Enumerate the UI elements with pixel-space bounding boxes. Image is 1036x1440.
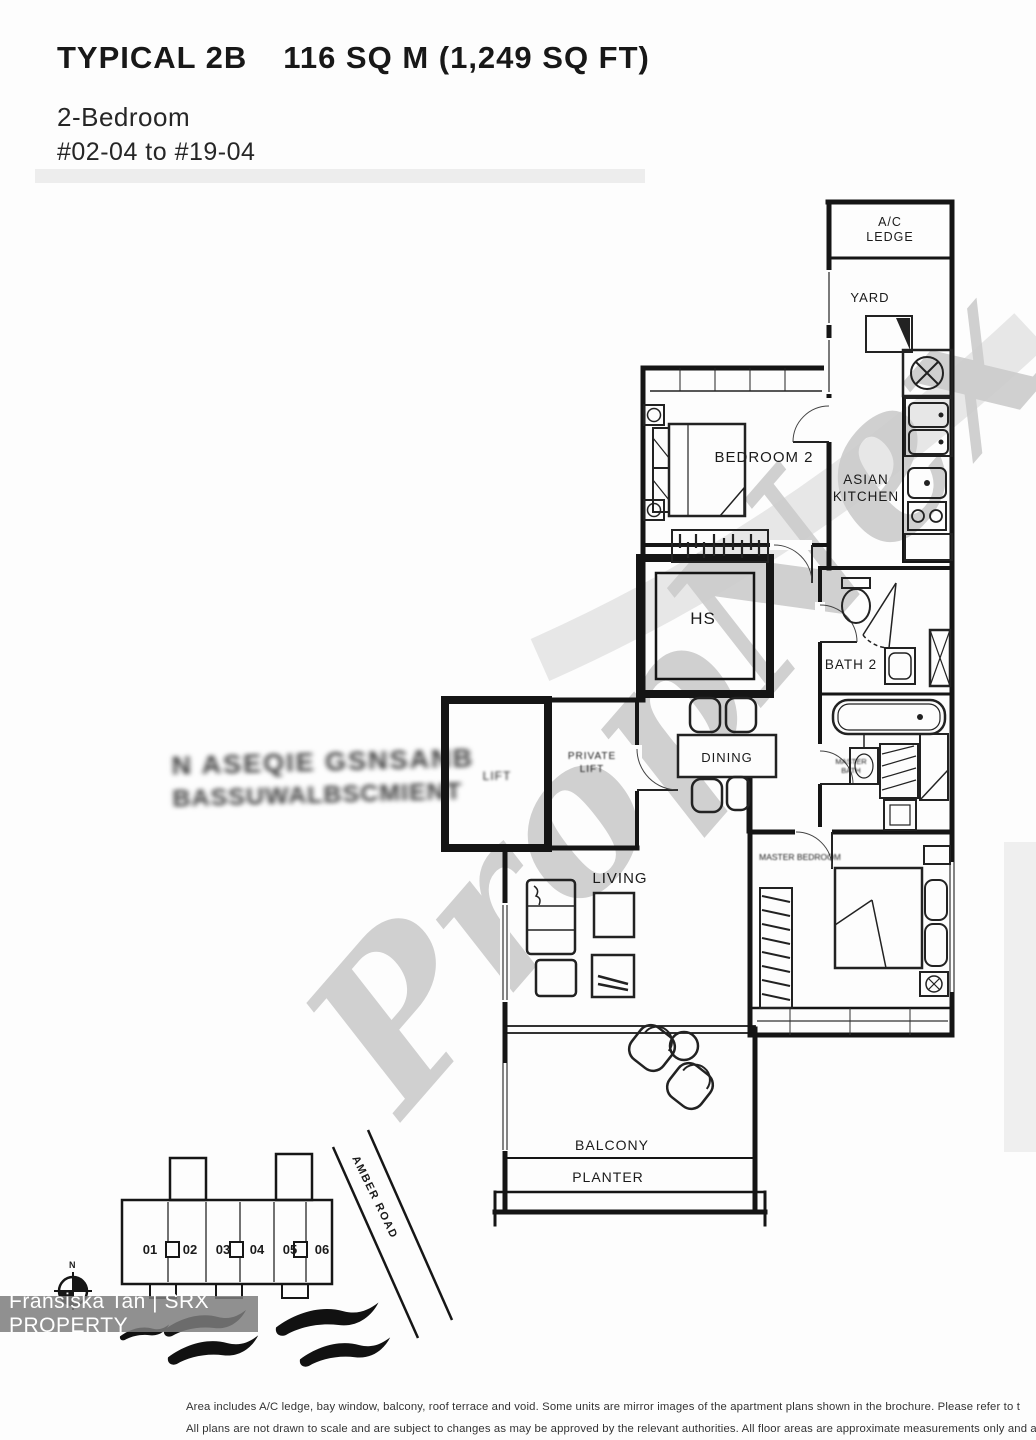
label-lift: LIFT: [483, 769, 512, 783]
kitchen-fixtures: [905, 468, 952, 560]
label-bedroom2: BEDROOM 2: [714, 449, 813, 466]
plan-type: TYPICAL 2B: [57, 40, 247, 76]
balcony-furniture: [624, 1018, 720, 1115]
unit-range: #02-04 to #19-04: [57, 138, 255, 167]
unit-number: 04: [250, 1242, 265, 1257]
road-label: AMBER ROAD: [349, 1154, 400, 1241]
disclaimer-line: All plans are not drawn to scale and are…: [186, 1423, 1036, 1435]
label-dining: DINING: [701, 750, 753, 765]
unit-number: 05: [283, 1242, 297, 1257]
label-hs: HS: [690, 609, 716, 628]
label-private-lift: LIFT: [580, 764, 605, 775]
label-balcony: BALCONY: [575, 1137, 649, 1153]
unit-number: 03: [216, 1242, 230, 1257]
label-asian-kitchen: KITCHEN: [833, 489, 899, 504]
label-master-bedroom: MASTER BEDROOM: [759, 852, 841, 862]
label-master-bath: MASTER: [835, 757, 867, 766]
label-ac-ledge: LEDGE: [866, 230, 913, 244]
disclaimer-line: Area includes A/C ledge, bay window, bal…: [186, 1401, 1036, 1413]
unit-number: 02: [183, 1242, 197, 1257]
plan-title: TYPICAL 2B 116 SQ M (1,249 SQ FT): [57, 40, 650, 76]
walls: [445, 202, 952, 1225]
agent-watermark-banner: Fransiska Tan | SRX PROPERTY: [0, 1296, 258, 1332]
label-asian-kitchen: ASIAN: [843, 472, 889, 487]
label-living: LIVING: [592, 870, 647, 887]
road: AMBER ROAD: [333, 1130, 452, 1338]
unit-number: 01: [143, 1242, 157, 1257]
label-bath2: BATH 2: [825, 657, 877, 672]
floorplan-page: PropNex N ASEQIE GSNSANB BASSUWALBSCMIEN…: [0, 0, 1036, 1440]
site-plan-building: [122, 1154, 332, 1298]
floor-plan-drawing: A/C LEDGE YARD BEDROOM 2 ASIAN KITCHEN H…: [0, 0, 1036, 1440]
label-ac-ledge: A/C: [878, 215, 902, 229]
compass-n-label: N: [69, 1260, 76, 1270]
label-planter: PLANTER: [572, 1169, 644, 1185]
unit-number: 06: [315, 1242, 329, 1257]
agent-name-label: Fransiska Tan | SRX PROPERTY: [9, 1290, 258, 1338]
label-private-lift: PRIVATE: [568, 751, 616, 762]
living-furniture: [527, 880, 634, 997]
plan-area: 116 SQ M (1,249 SQ FT): [283, 40, 650, 76]
label-yard: YARD: [850, 290, 889, 305]
label-master-bath: BATH: [841, 766, 860, 775]
windows-and-doors: [500, 270, 957, 1151]
master-bedroom-furniture: [760, 846, 950, 1008]
bedroom-type: 2-Bedroom: [57, 102, 190, 133]
